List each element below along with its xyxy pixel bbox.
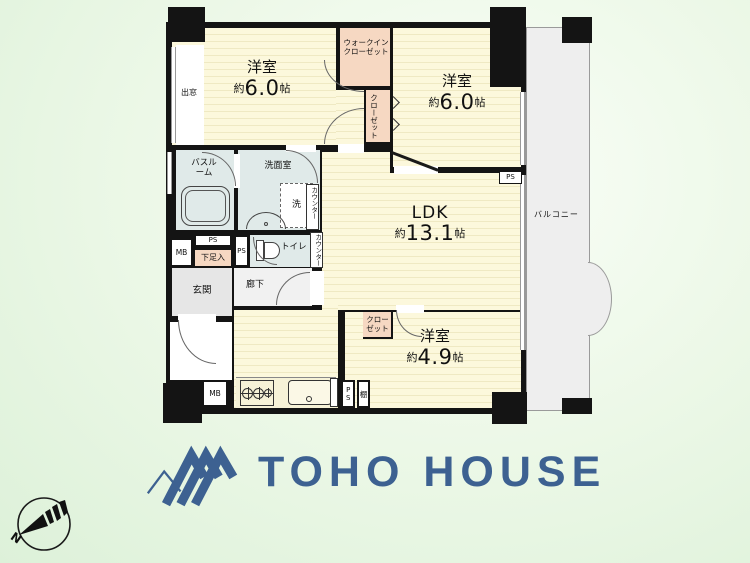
mb-kitchen-label: MB bbox=[202, 380, 228, 407]
size-unit: 帖 bbox=[452, 351, 463, 364]
door-gap bbox=[310, 271, 324, 305]
size-value: 6.0 bbox=[245, 76, 280, 101]
counter-toilet-label: カウンター bbox=[313, 234, 321, 267]
pillar bbox=[562, 17, 592, 43]
closet-mid-label: クローゼット bbox=[368, 94, 379, 140]
hallway-label: 廊下 bbox=[246, 280, 264, 291]
size-prefix: 約 bbox=[395, 227, 406, 240]
size-value: 4.9 bbox=[418, 345, 453, 370]
door-gap bbox=[338, 144, 364, 153]
ps-kitchen-label: PS bbox=[343, 382, 353, 406]
pillar bbox=[168, 7, 205, 42]
washroom-label: 洗面室 bbox=[250, 161, 306, 172]
balcony-bump bbox=[588, 262, 612, 336]
toho-house-logo-mark-icon bbox=[146, 434, 246, 518]
balcony-label: バルコニー bbox=[534, 210, 579, 220]
bedroom3-name: 洋室 bbox=[380, 327, 490, 345]
walk-in-closet-label: ウォークインクローゼット bbox=[341, 38, 391, 56]
mb-entrance-label: MB bbox=[170, 238, 193, 267]
ps-hall-label: PS bbox=[234, 235, 249, 267]
bedroom1-size: 約6.0帖 bbox=[202, 76, 322, 101]
pillar bbox=[492, 392, 527, 424]
ldk-kitchen-opening bbox=[322, 302, 338, 314]
washbasin-drain bbox=[264, 222, 268, 226]
bathroom-label: バスルーム bbox=[189, 158, 219, 178]
bedroom2-name: 洋室 bbox=[407, 72, 507, 90]
bedroom1-name: 洋室 bbox=[212, 58, 312, 76]
window-ldk-east bbox=[520, 175, 526, 350]
size-unit: 帖 bbox=[474, 96, 485, 109]
entrance-label: 玄関 bbox=[180, 285, 224, 296]
window-bathroom bbox=[167, 152, 172, 194]
size-value: 6.0 bbox=[440, 90, 475, 115]
bedroom3-size: 約4.9帖 bbox=[370, 345, 500, 370]
ps-bedroom2-label: PS bbox=[499, 171, 522, 184]
kitchen-side-strip bbox=[330, 378, 338, 407]
pillar bbox=[562, 398, 592, 414]
bathtub-inner bbox=[185, 190, 226, 222]
ldk-size: 約13.1帖 bbox=[365, 221, 495, 246]
shoe-cabinet-label: 下足入 bbox=[194, 249, 232, 267]
bedroom2-size: 約6.0帖 bbox=[397, 90, 517, 115]
window-bedroom2-east bbox=[520, 92, 526, 165]
compass-north-arrow-icon: N bbox=[10, 490, 76, 556]
size-prefix: 約 bbox=[429, 96, 440, 109]
floor-plan-page: バルコニー ウォークインクローゼット クローゼット クローゼット 出窓 MB P… bbox=[0, 0, 750, 563]
size-unit: 帖 bbox=[279, 82, 290, 95]
logo-text: TOHO HOUSE bbox=[258, 448, 606, 497]
laundry-label: 洗 bbox=[280, 183, 313, 228]
size-unit: 帖 bbox=[454, 227, 465, 240]
compass-label: N bbox=[10, 529, 24, 546]
shelf-label: 棚 bbox=[357, 380, 370, 408]
size-prefix: 約 bbox=[234, 82, 245, 95]
pillar bbox=[163, 383, 202, 423]
stove-burner-icon bbox=[264, 389, 272, 397]
stove-icon bbox=[240, 380, 274, 406]
toilet-label: トイレ bbox=[281, 242, 307, 252]
ps-entrance-label: PS bbox=[194, 234, 232, 247]
bay-window-label: 出窓 bbox=[174, 88, 204, 98]
size-prefix: 約 bbox=[407, 351, 418, 364]
kitchen-sink-drain bbox=[306, 396, 312, 402]
size-value: 13.1 bbox=[406, 221, 455, 246]
